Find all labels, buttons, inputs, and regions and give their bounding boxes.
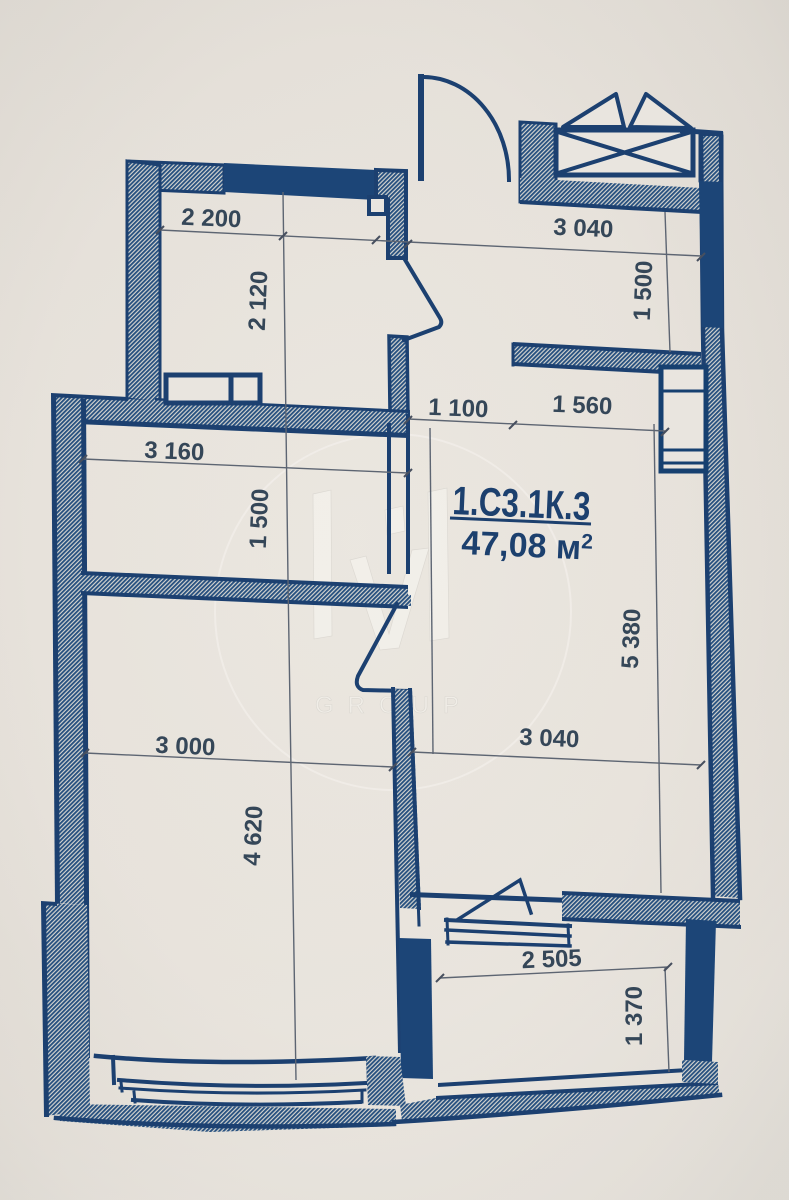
- svg-text:3 160: 3 160: [144, 437, 205, 467]
- svg-text:1 560: 1 560: [552, 391, 613, 421]
- svg-text:5 380: 5 380: [617, 608, 647, 669]
- svg-text:2 120: 2 120: [244, 270, 274, 331]
- svg-text:3 040: 3 040: [553, 214, 614, 244]
- svg-text:1 370: 1 370: [621, 986, 648, 1046]
- svg-text:1 500: 1 500: [245, 488, 275, 549]
- svg-text:2 505: 2 505: [521, 945, 582, 975]
- svg-text:3 040: 3 040: [519, 724, 580, 754]
- svg-text:1 100: 1 100: [428, 394, 489, 424]
- svg-text:3 000: 3 000: [155, 732, 216, 762]
- svg-text:4 620: 4 620: [239, 805, 269, 866]
- svg-text:2 200: 2 200: [181, 204, 242, 234]
- svg-text:1 500: 1 500: [629, 260, 659, 321]
- svg-text:47,08 м2: 47,08 м2: [461, 524, 594, 568]
